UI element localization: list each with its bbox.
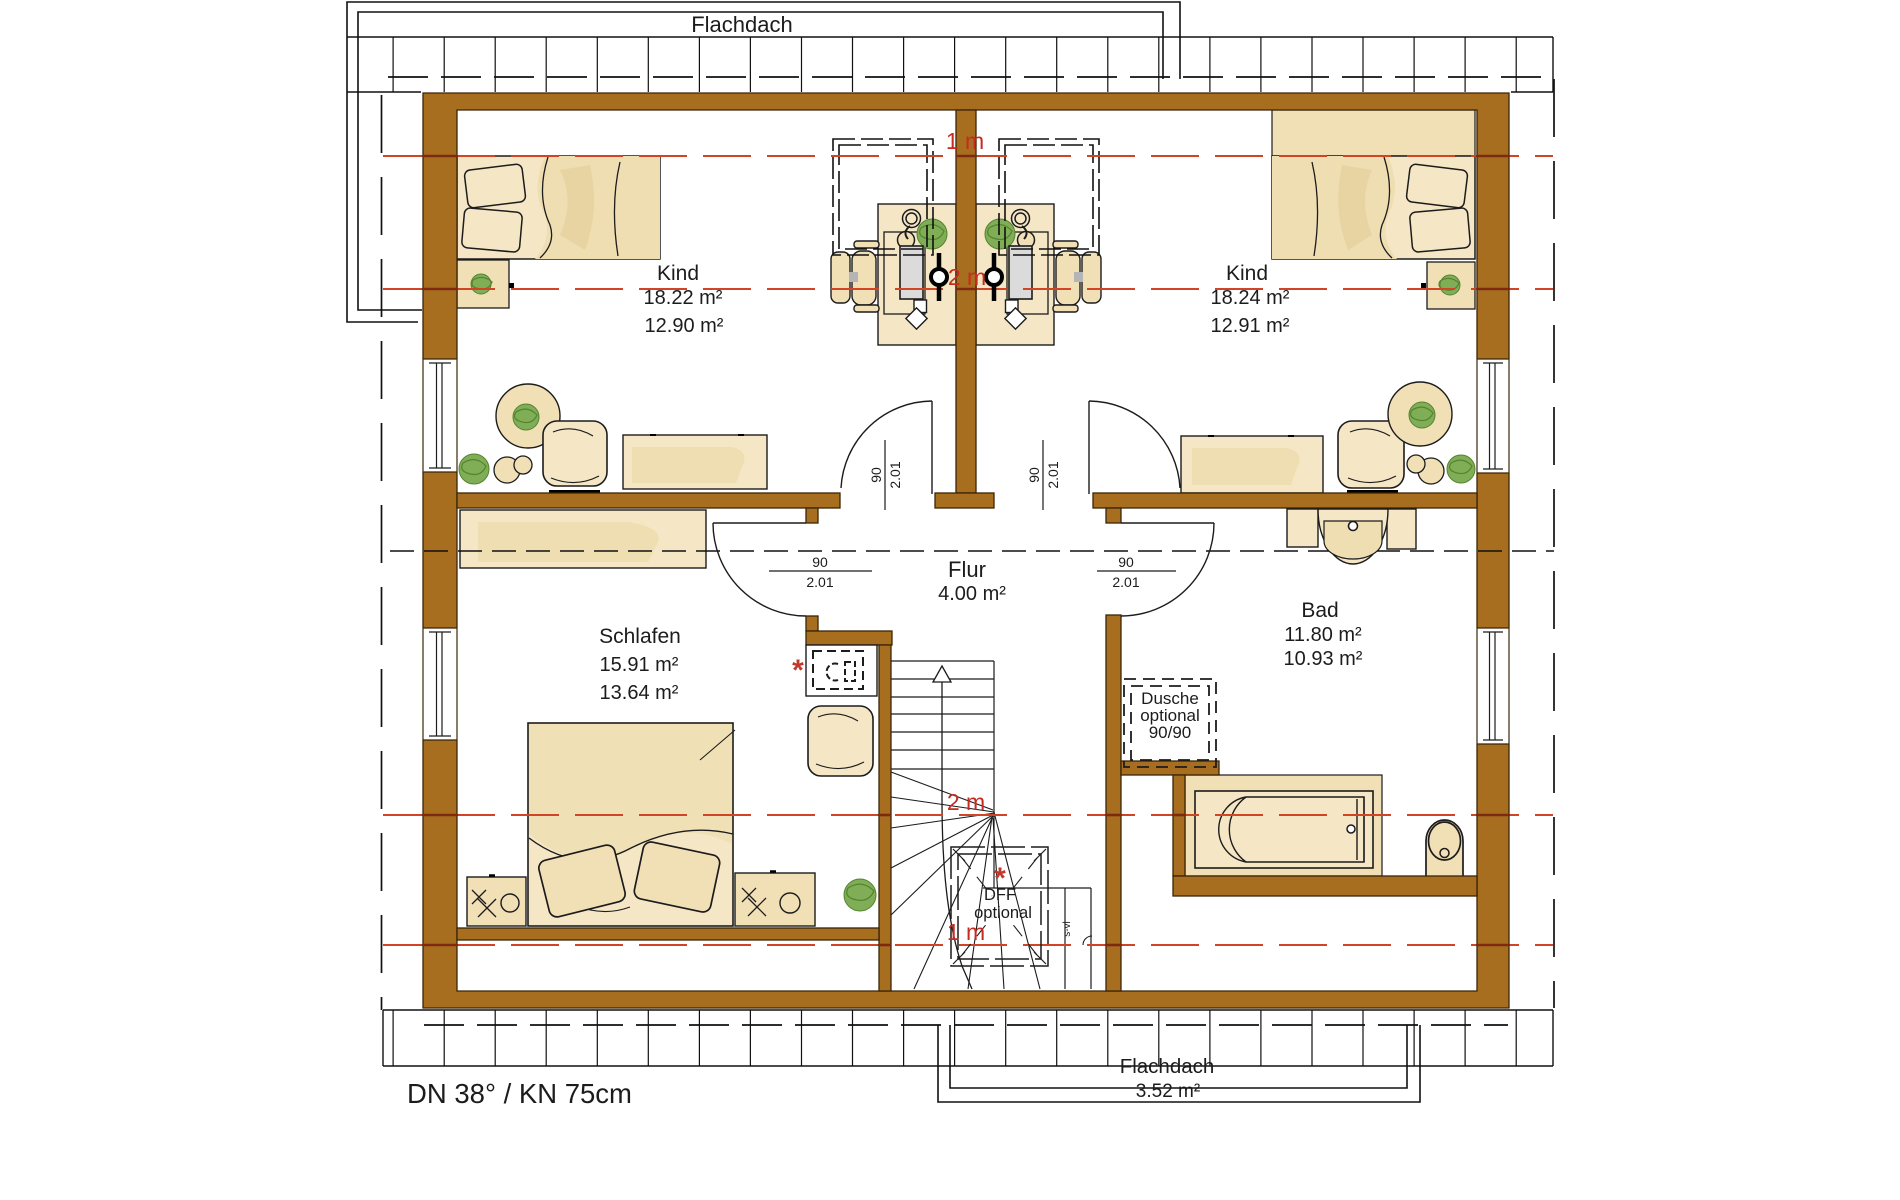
svg-text:15.91 m²: 15.91 m² [600,654,679,676]
svg-text:90: 90 [868,467,884,483]
svg-text:90: 90 [1118,554,1134,570]
svg-text:18.24 m²: 18.24 m² [1211,287,1290,309]
svg-text:2 m: 2 m [947,789,985,815]
svg-text:1 m: 1 m [947,919,985,945]
svg-text:Flur: Flur [948,557,986,582]
svg-text:1 m: 1 m [946,128,984,154]
svg-text:90/90: 90/90 [1149,723,1192,742]
svg-text:*: * [792,654,804,687]
svg-text:Kind: Kind [1226,262,1268,285]
svg-text:13.64 m²: 13.64 m² [600,682,679,704]
svg-text:2.01: 2.01 [1112,574,1139,590]
svg-text:90: 90 [1026,467,1042,483]
svg-text:DN 38° / KN 75cm: DN 38° / KN 75cm [407,1078,632,1109]
svg-text:Kind: Kind [657,262,699,285]
svg-text:10.93 m²: 10.93 m² [1284,648,1363,670]
svg-text:2.01: 2.01 [887,461,903,488]
svg-text:2.01: 2.01 [1045,461,1061,488]
svg-text:*: * [994,862,1006,895]
svg-text:11.80 m²: 11.80 m² [1284,624,1362,646]
svg-text:Flachdach: Flachdach [691,12,793,37]
svg-text:2.01: 2.01 [806,574,833,590]
svg-text:3.52 m²: 3.52 m² [1136,1081,1200,1102]
svg-text:Bad: Bad [1301,599,1338,622]
svg-text:2 m: 2 m [948,264,986,290]
svg-text:12.91 m²: 12.91 m² [1211,315,1290,337]
svg-text:12.90 m²: 12.90 m² [645,315,724,337]
svg-text:s-vl: s-vl [1062,921,1073,937]
svg-text:4.00 m²: 4.00 m² [938,583,1006,605]
svg-text:Schlafen: Schlafen [599,625,681,648]
svg-text:90: 90 [812,554,828,570]
svg-text:Flachdach: Flachdach [1120,1055,1215,1078]
svg-text:18.22 m²: 18.22 m² [644,287,723,309]
